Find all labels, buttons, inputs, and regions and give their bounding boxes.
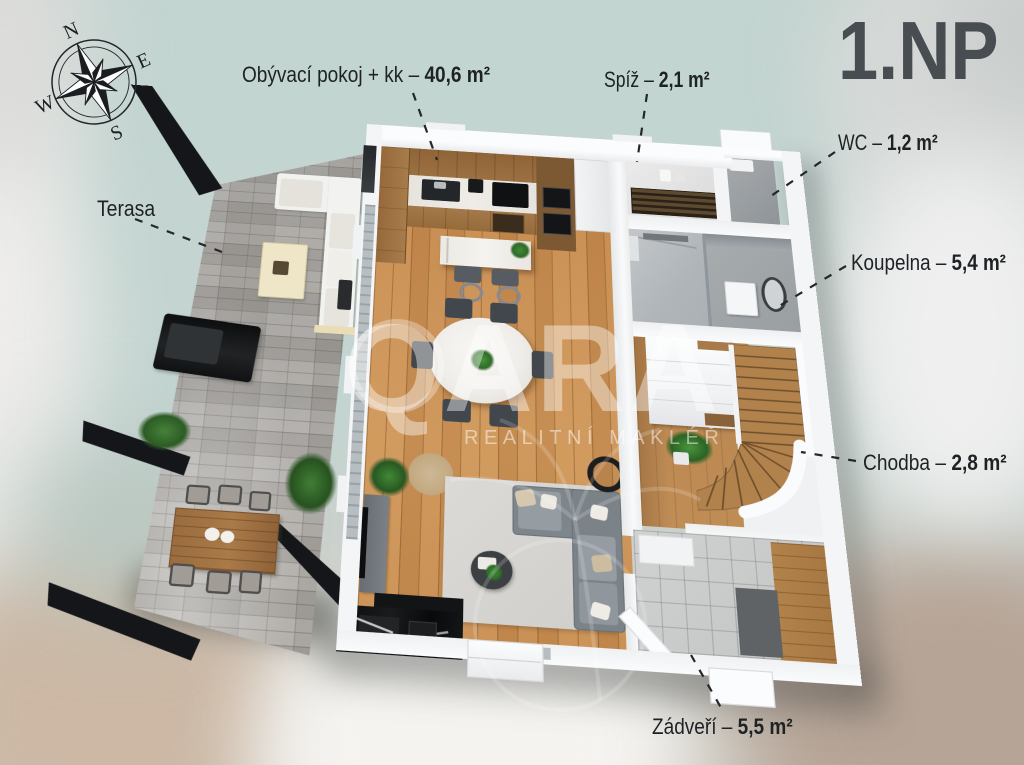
svg-text:S: S (107, 121, 126, 146)
svg-text:E: E (134, 48, 154, 73)
svg-text:N: N (60, 18, 82, 44)
